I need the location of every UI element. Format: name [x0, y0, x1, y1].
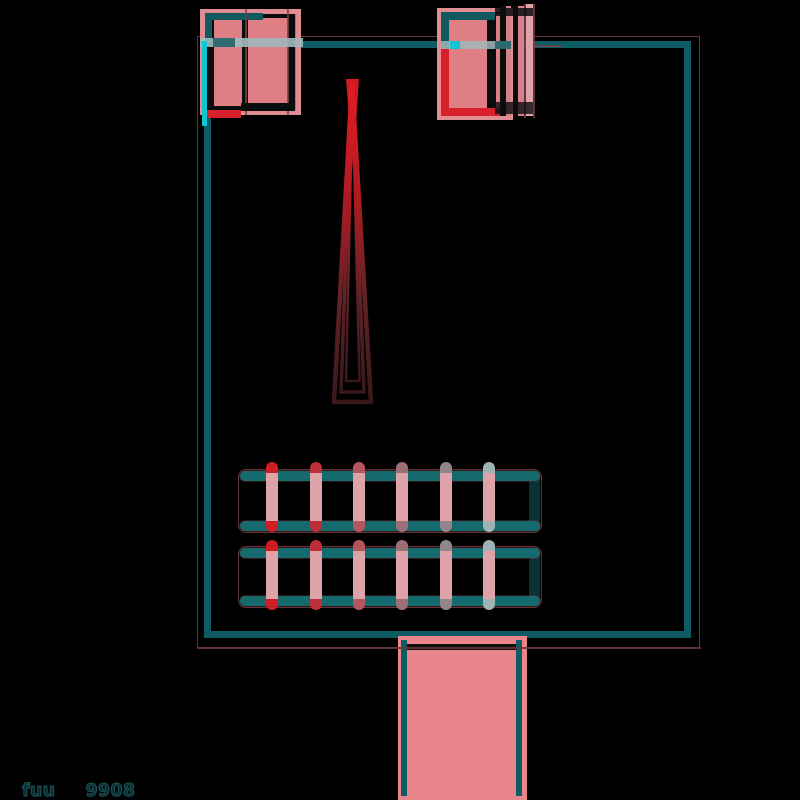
right-ear-cyan-segment: [450, 41, 460, 49]
right-ear-teal-edge: [441, 12, 495, 20]
ladder-rung: [396, 540, 408, 610]
right-ear-glitch-stripe: [506, 6, 511, 116]
nose-triangle-icon: [320, 70, 390, 410]
right-ear-teal-segment: [495, 41, 511, 49]
ladder-rung: [483, 540, 495, 610]
neck-teal-edge: [401, 640, 407, 796]
left-ear-glitch-line: [245, 9, 247, 115]
caption: fuu9908 Says this a lot jpeg: [22, 736, 216, 800]
right-ear-dark-band: [495, 102, 533, 114]
ladder-rung: [266, 462, 278, 532]
mouth-ladder-bottom-rail-upper: [240, 548, 540, 558]
neck-pink-rect: [398, 636, 527, 800]
left-ear-black-band: [241, 103, 295, 111]
left-ear-red-bar: [207, 110, 241, 118]
right-ear-dark-band: [495, 8, 533, 16]
caption-number: 9908: [85, 781, 135, 800]
ladder-rung: [310, 462, 322, 532]
left-ear-teal-edge: [205, 13, 263, 20]
neck-teal-edge: [516, 640, 522, 796]
left-ear-pink-frame: [200, 9, 301, 115]
right-ear-red-edge: [441, 108, 501, 116]
maroon-crossing-line: [197, 647, 701, 649]
right-ear-trailing-line: [534, 45, 562, 47]
ladder-rung: [396, 462, 408, 532]
ladder-rung: [483, 462, 495, 532]
ladder-rung: [440, 540, 452, 610]
right-ear-red-edge: [441, 48, 449, 116]
left-ear-cyan-line: [202, 41, 207, 126]
ladder-rung: [440, 462, 452, 532]
ladder-rung: [266, 540, 278, 610]
mouth-ladder-top-rail-upper: [240, 471, 540, 481]
caption-line1: fuu9908: [22, 780, 216, 800]
artwork-canvas: fuu9908 Says this a lot jpeg: [0, 0, 800, 800]
right-ear-glitch-stripe: [526, 4, 533, 116]
right-ear-glitch-line: [533, 4, 535, 118]
ladder-rung: [310, 540, 322, 610]
left-ear-glitch-stripe: [295, 9, 300, 115]
ladder-rung: [353, 540, 365, 610]
mouth-ladder-bottom-rail-lower: [240, 596, 540, 606]
left-ear-border-crossing-dark: [213, 38, 235, 47]
mouth-ladder-top-rail-lower: [240, 521, 540, 531]
caption-name: fuu: [22, 781, 55, 800]
left-ear-glitch-line: [287, 9, 289, 115]
ladder-rung: [353, 462, 365, 532]
